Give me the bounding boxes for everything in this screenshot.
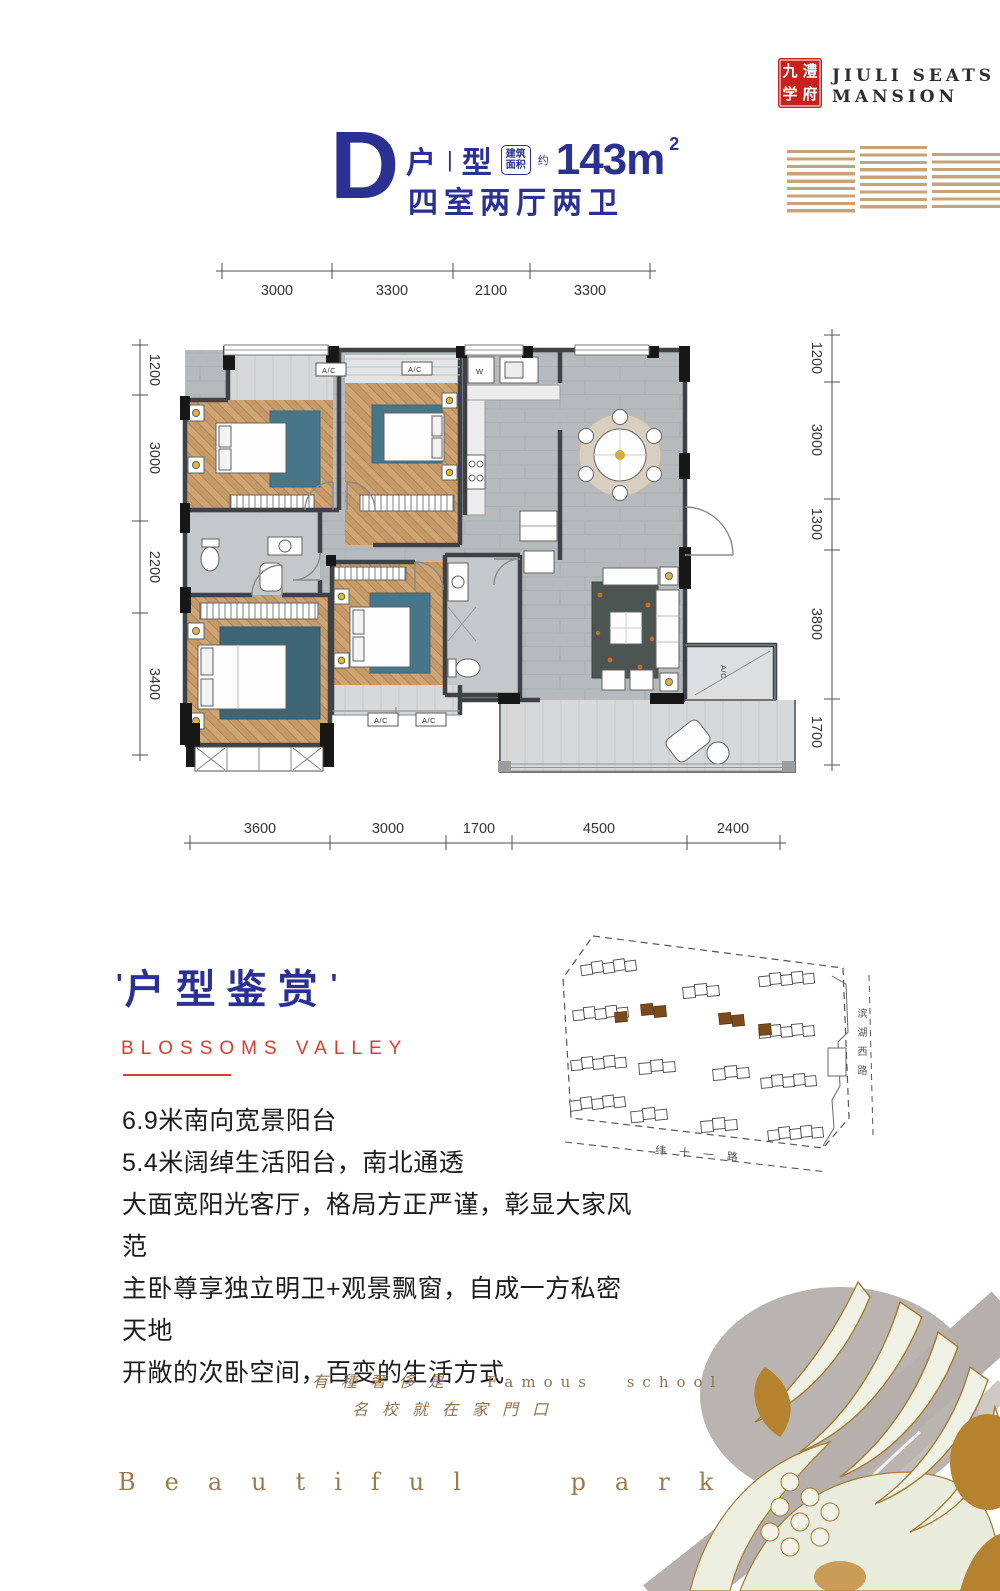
site-buildings [569, 956, 823, 1143]
dim-right: 1300 [808, 508, 824, 540]
stripe-block [860, 146, 928, 210]
approx-label: 约 [538, 152, 549, 168]
brand-name-line1: JIULI SEATS [832, 66, 995, 87]
quote-mark: ' [331, 970, 338, 998]
dim-top: 3300 [574, 283, 606, 299]
dim-right: 3000 [808, 424, 824, 456]
ac-label: A/C [408, 365, 422, 374]
dim-left: 1200 [146, 354, 162, 386]
showcase-subtitle: BLOSSOMS VALLEY [121, 1038, 408, 1060]
dim-left: 3400 [146, 668, 162, 700]
seal-char: 澧 [802, 64, 817, 79]
dim-left: 2200 [146, 551, 162, 583]
feature-item: 大面宽阳光客厅，格局方正严谨，彰显大家风范 [122, 1184, 642, 1268]
stripe-block [932, 153, 1000, 210]
unit-layout: 四室两厅两卫 [408, 178, 624, 222]
site-building [828, 1048, 846, 1076]
brand-name-line2: MANSION [832, 87, 995, 108]
dim-bottom: 1700 [463, 821, 495, 837]
showcase-title: ' 户型鉴赏 ' [116, 968, 337, 1012]
area-superscript: 2 [669, 134, 679, 155]
dim-bottom: 2400 [717, 821, 749, 837]
seal-char: 九 [782, 64, 797, 79]
brand-name: JIULI SEATS MANSION [832, 66, 995, 108]
south-balcony-floor [500, 700, 795, 772]
unit-letter: D [330, 118, 399, 214]
ac-label: A/C [719, 665, 728, 679]
red-underline [123, 1074, 231, 1076]
road-label-right: 滨湖西路 [853, 1008, 868, 1084]
area-value: 143m [556, 138, 665, 182]
tagline-cn: 有種奢侈是 [312, 1368, 457, 1392]
quote-mark: ' [116, 970, 123, 998]
dim-top: 3000 [261, 283, 293, 299]
stripe-block [787, 150, 855, 214]
poster-page: 九 澧 学 府 JIULI SEATS MANSION D 户 | 型 建筑 面… [0, 0, 1000, 1591]
unit-type-right: 型 [462, 138, 494, 182]
dim-top: 2100 [475, 283, 507, 299]
seal-char: 府 [802, 87, 817, 102]
seal-char: 学 [782, 87, 797, 102]
highlighted-buildings [615, 1003, 772, 1035]
dim-right: 1700 [808, 716, 824, 748]
area-label-box: 建筑 面积 [501, 145, 531, 175]
dim-bottom: 4500 [583, 821, 615, 837]
showcase-title-text: 户型鉴赏 [125, 968, 329, 1012]
ac-label: A/C [374, 716, 388, 725]
footer-tagline-1: 有種奢侈是 Famous school [312, 1368, 723, 1392]
footer-tagline-2: 名校就在家門口 [352, 1396, 562, 1420]
ac-label: A/C [422, 716, 436, 725]
unit-type-divider: | [447, 147, 453, 173]
dim-right: 1200 [808, 342, 824, 374]
decor-stripes [787, 150, 1000, 214]
dim-bottom: 3000 [372, 821, 404, 837]
floorplan-svg: W [120, 255, 850, 850]
ac-label: A/C [322, 366, 336, 375]
unit-type-left: 户 [406, 138, 438, 182]
dim-left: 3000 [146, 442, 162, 474]
area-box-bottom: 面积 [506, 160, 526, 171]
watermark-text: Beautiful park [118, 1468, 742, 1496]
area-box-top: 建筑 [506, 149, 526, 160]
unit-title-row: 户 | 型 建筑 面积 约 143m 2 [406, 138, 681, 182]
dim-top: 3300 [376, 283, 408, 299]
dim-right: 3800 [808, 608, 824, 640]
phoenix-artwork [540, 1272, 1000, 1591]
washer-label: W [476, 367, 484, 376]
road-line-right [869, 975, 873, 1135]
ac-platform-floor [685, 645, 775, 700]
tagline-en: Famous school [487, 1373, 723, 1391]
brand-seal: 九 澧 学 府 [778, 58, 822, 108]
dim-bottom: 3600 [244, 821, 276, 837]
